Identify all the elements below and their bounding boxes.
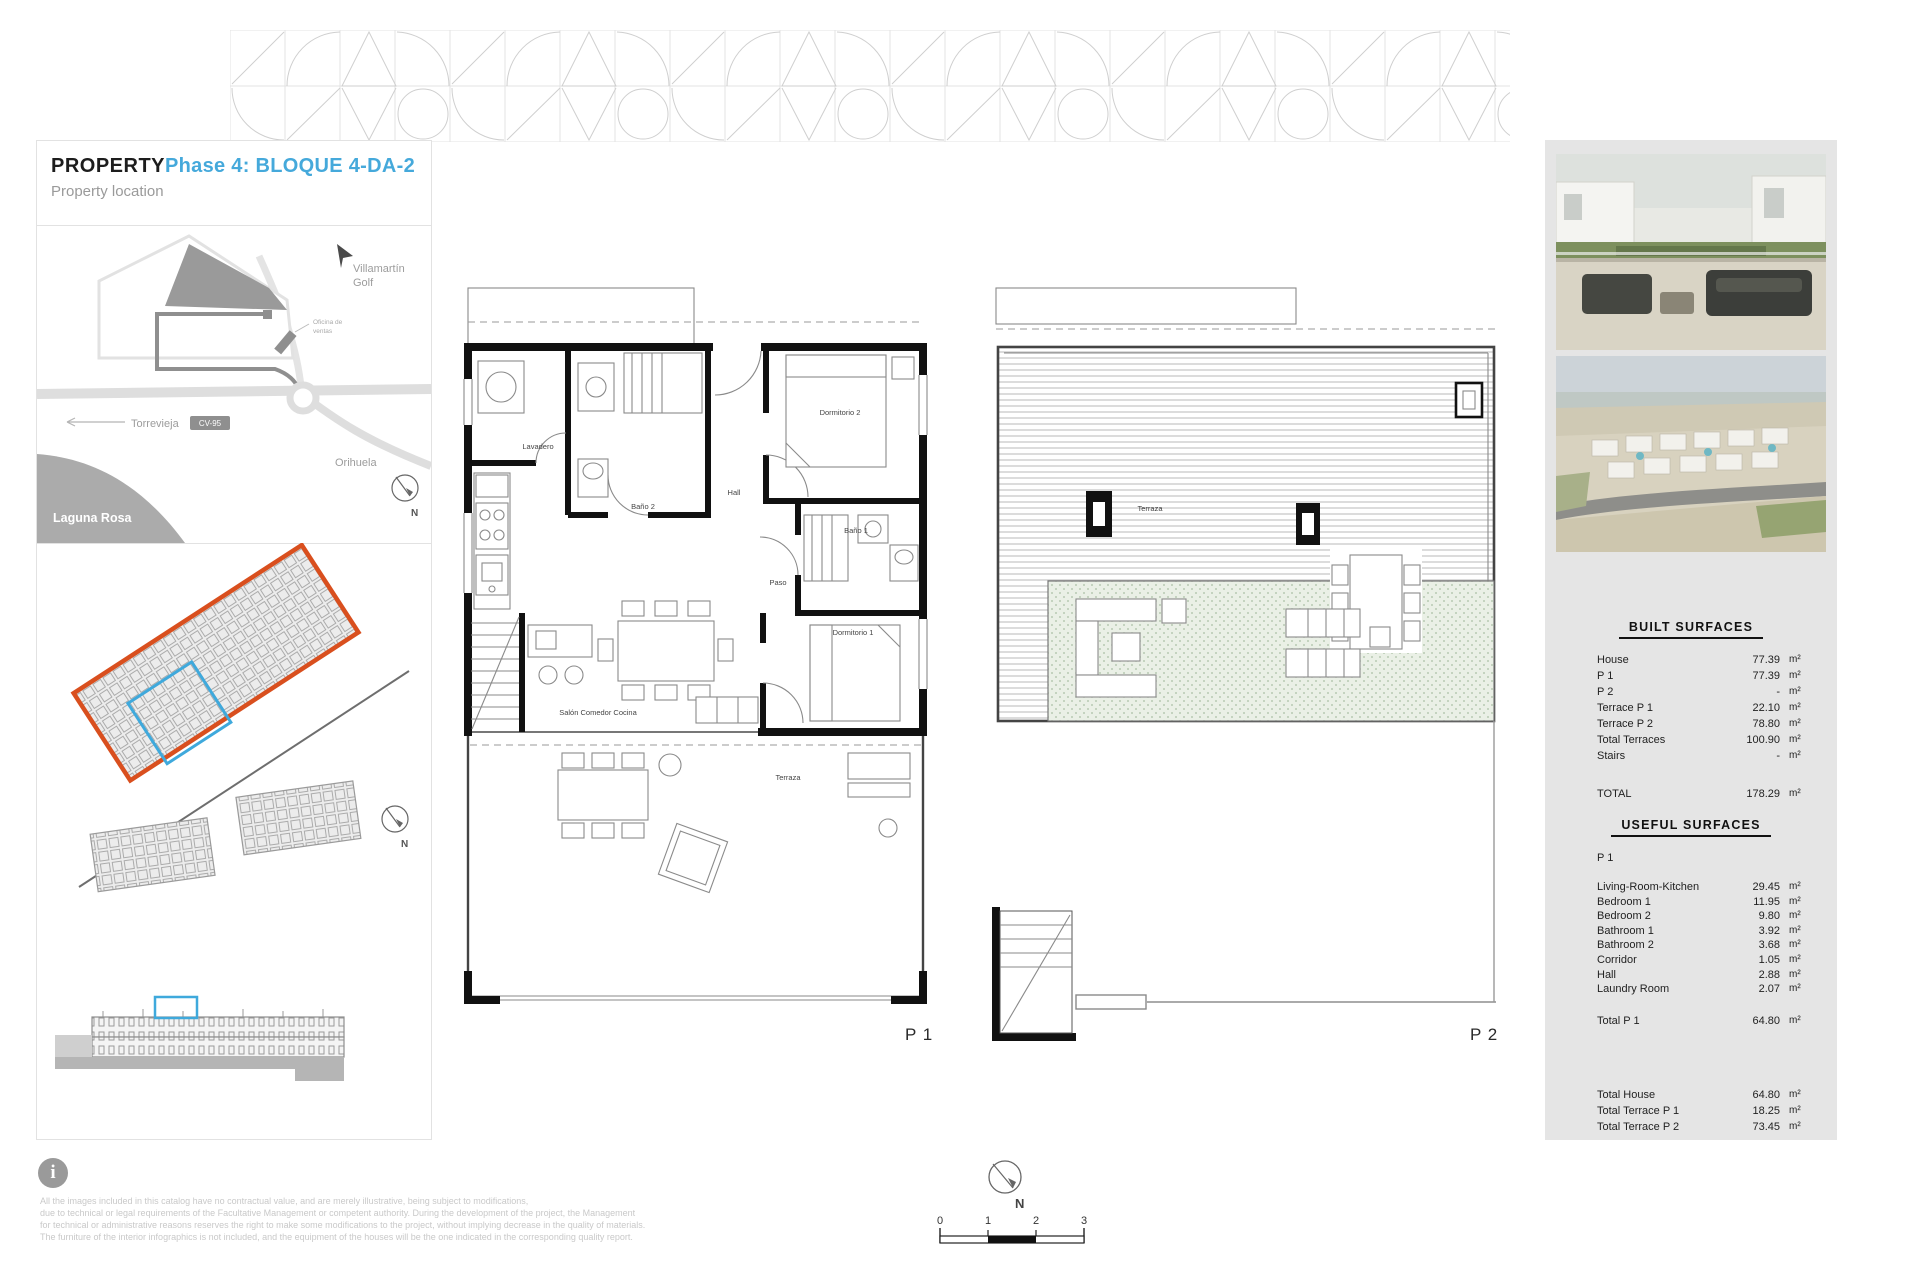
panel-header: PROPERTY Phase 4: BLOQUE 4-DA-2 Property… bbox=[37, 141, 431, 226]
svg-text:0: 0 bbox=[937, 1215, 943, 1227]
aerial-photo bbox=[1556, 356, 1826, 552]
site-north-compass-icon: N bbox=[382, 806, 408, 850]
table-row: Total Terraces100.90m² bbox=[1597, 732, 1813, 748]
golf-label: Villamartín bbox=[353, 263, 405, 275]
room-label-corridor: Paso bbox=[769, 578, 786, 587]
disclaimer-line: for technical or administrative reasons … bbox=[40, 1220, 645, 1232]
table-row: Bedroom 29.80m² bbox=[1597, 909, 1813, 924]
built-surfaces-table: House77.39m² P 177.39m² P 2-m² Terrace P… bbox=[1597, 652, 1813, 802]
table-row: Corridor1.05m² bbox=[1597, 953, 1813, 968]
useful-surfaces-title-wrap: USEFUL SURFACES bbox=[1545, 816, 1837, 837]
table-row: Terrace P 122.10m² bbox=[1597, 700, 1813, 716]
table-row: P 2-m² bbox=[1597, 684, 1813, 700]
building-elevation bbox=[37, 959, 431, 1139]
svg-text:1: 1 bbox=[985, 1215, 991, 1227]
svg-text:CV-95: CV-95 bbox=[199, 419, 222, 428]
svg-text:2: 2 bbox=[1033, 1215, 1039, 1227]
table-total-row: TOTAL178.29m² bbox=[1597, 786, 1813, 802]
room-label-terrace-p2: Terraza bbox=[1137, 504, 1163, 513]
room-label-terrace-p1: Terraza bbox=[775, 773, 801, 782]
site-plan: N bbox=[37, 543, 431, 959]
disclaimer-line: The furniture of the interior infographi… bbox=[40, 1232, 633, 1244]
lake-label: Laguna Rosa bbox=[53, 511, 133, 525]
stairs bbox=[471, 613, 522, 732]
table-row: Hall2.88m² bbox=[1597, 968, 1813, 983]
room-label-laundry: Lavadero bbox=[522, 442, 553, 451]
roundabout bbox=[290, 385, 316, 411]
property-title: PROPERTY bbox=[51, 155, 165, 178]
golf-cursor-icon bbox=[337, 244, 353, 268]
roof-stairs bbox=[996, 907, 1076, 1037]
railing bbox=[1076, 995, 1146, 1009]
svg-text:3: 3 bbox=[1081, 1215, 1087, 1227]
svg-text:N: N bbox=[1015, 1196, 1024, 1211]
surfaces-panel: BUILT SURFACES House77.39m² P 177.39m² P… bbox=[1545, 140, 1837, 1140]
useful-surfaces-floor-label: P 1 bbox=[1597, 852, 1613, 864]
city-label-orihuela: Orihuela bbox=[335, 457, 377, 469]
scale-bar: 0 1 2 3 bbox=[937, 1215, 1087, 1243]
table-row: Bathroom 13.92m² bbox=[1597, 924, 1813, 939]
phase-title: Phase 4: BLOQUE 4-DA-2 bbox=[165, 155, 415, 178]
table-total-row: Total P 164.80m² bbox=[1597, 1013, 1813, 1029]
floor-plan-p1: Lavadero Baño 2 Hall Dormitorio 2 Paso B… bbox=[458, 283, 933, 1008]
built-surfaces-title: BUILT SURFACES bbox=[1619, 620, 1763, 639]
built-surfaces-title-wrap: BUILT SURFACES bbox=[1545, 618, 1837, 639]
decorative-pattern bbox=[230, 30, 1510, 142]
floor-plan-label-p2: P 2 bbox=[1470, 1025, 1498, 1045]
useful-surfaces-title: USEFUL SURFACES bbox=[1611, 818, 1770, 837]
room-label-bath1: Baño 1 bbox=[844, 526, 868, 535]
room-label-bed1: Dormitorio 1 bbox=[833, 628, 874, 637]
kitchen-counter bbox=[474, 473, 510, 609]
compass-and-scale: N 0 1 2 3 bbox=[925, 1148, 1105, 1258]
north-compass-icon: N bbox=[989, 1161, 1024, 1211]
property-info-panel: PROPERTY Phase 4: BLOQUE 4-DA-2 Property… bbox=[36, 140, 432, 1140]
section-label: Property location bbox=[51, 183, 164, 200]
table-row: Terrace P 278.80m² bbox=[1597, 716, 1813, 732]
svg-text:N: N bbox=[411, 508, 418, 519]
map-north-compass-icon: N bbox=[392, 475, 418, 519]
table-row: P 177.39m² bbox=[1597, 668, 1813, 684]
bath1-fixtures bbox=[804, 515, 918, 581]
info-icon: i bbox=[38, 1158, 68, 1188]
location-map: Oficina de ventas Villamartín Golf Torre… bbox=[37, 226, 431, 544]
table-row: Living-Room-Kitchen29.45m² bbox=[1597, 880, 1813, 895]
disclaimer-line: due to technical or legal requirements o… bbox=[40, 1208, 635, 1220]
floor-plan-p2: Terraza bbox=[990, 283, 1505, 1045]
bath2-fixtures bbox=[578, 353, 702, 497]
floor-plan-label-p1: P 1 bbox=[905, 1025, 933, 1045]
table-row: Stairs-m² bbox=[1597, 748, 1813, 764]
svg-text:N: N bbox=[401, 839, 408, 850]
kitchen-island bbox=[528, 625, 592, 684]
lake-shape bbox=[37, 454, 185, 543]
table-row: Bathroom 23.68m² bbox=[1597, 938, 1813, 953]
table-row: Bedroom 111.95m² bbox=[1597, 895, 1813, 910]
table-row: Total House64.80m² bbox=[1597, 1087, 1813, 1103]
building-cluster-b bbox=[236, 781, 361, 855]
table-row: Laundry Room2.07m² bbox=[1597, 982, 1813, 997]
sales-office-label: Oficina de bbox=[313, 319, 343, 326]
svg-text:Golf: Golf bbox=[353, 277, 374, 289]
terrace-photo bbox=[1556, 154, 1826, 350]
terrace-furniture bbox=[558, 753, 910, 893]
svg-text:ventas: ventas bbox=[313, 328, 333, 335]
building-cluster-a bbox=[90, 818, 215, 892]
catalog-page: PROPERTY Phase 4: BLOQUE 4-DA-2 Property… bbox=[0, 0, 1920, 1280]
room-label-bed2: Dormitorio 2 bbox=[820, 408, 861, 417]
sofa bbox=[696, 697, 758, 723]
bed1-furniture bbox=[810, 625, 900, 721]
useful-surfaces-table: Living-Room-Kitchen29.45m² Bedroom 111.9… bbox=[1597, 880, 1813, 1135]
phase-outline bbox=[74, 545, 359, 780]
roof-box bbox=[1456, 383, 1482, 417]
room-label-hall: Hall bbox=[728, 488, 741, 497]
disclaimer-line: All the images included in this catalog … bbox=[40, 1196, 528, 1208]
table-row: Total Terrace P 273.45m² bbox=[1597, 1119, 1813, 1135]
unit-highlight-elevation bbox=[155, 997, 197, 1018]
table-row: Total Terrace P 118.25m² bbox=[1597, 1103, 1813, 1119]
room-label-living: Salón Comedor Cocina bbox=[559, 708, 637, 717]
dining-table bbox=[598, 601, 733, 700]
table-row: House77.39m² bbox=[1597, 652, 1813, 668]
road-label-torrevieja: Torrevieja bbox=[131, 418, 180, 430]
room-label-bath2: Baño 2 bbox=[631, 502, 655, 511]
